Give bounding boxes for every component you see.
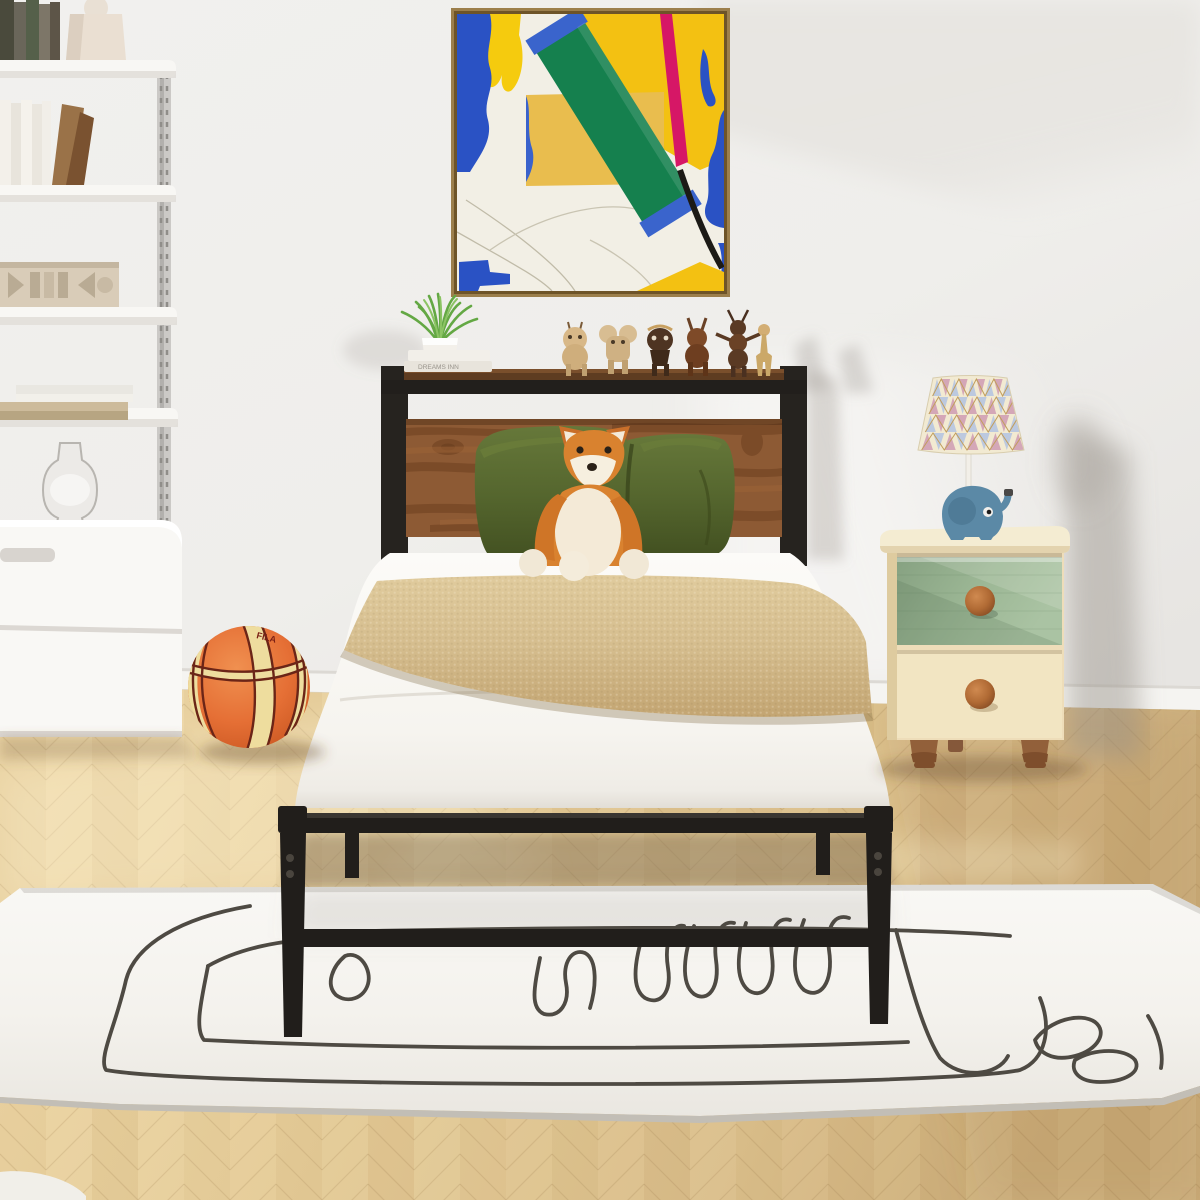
svg-text:DREAMS INN: DREAMS INN — [418, 364, 459, 371]
